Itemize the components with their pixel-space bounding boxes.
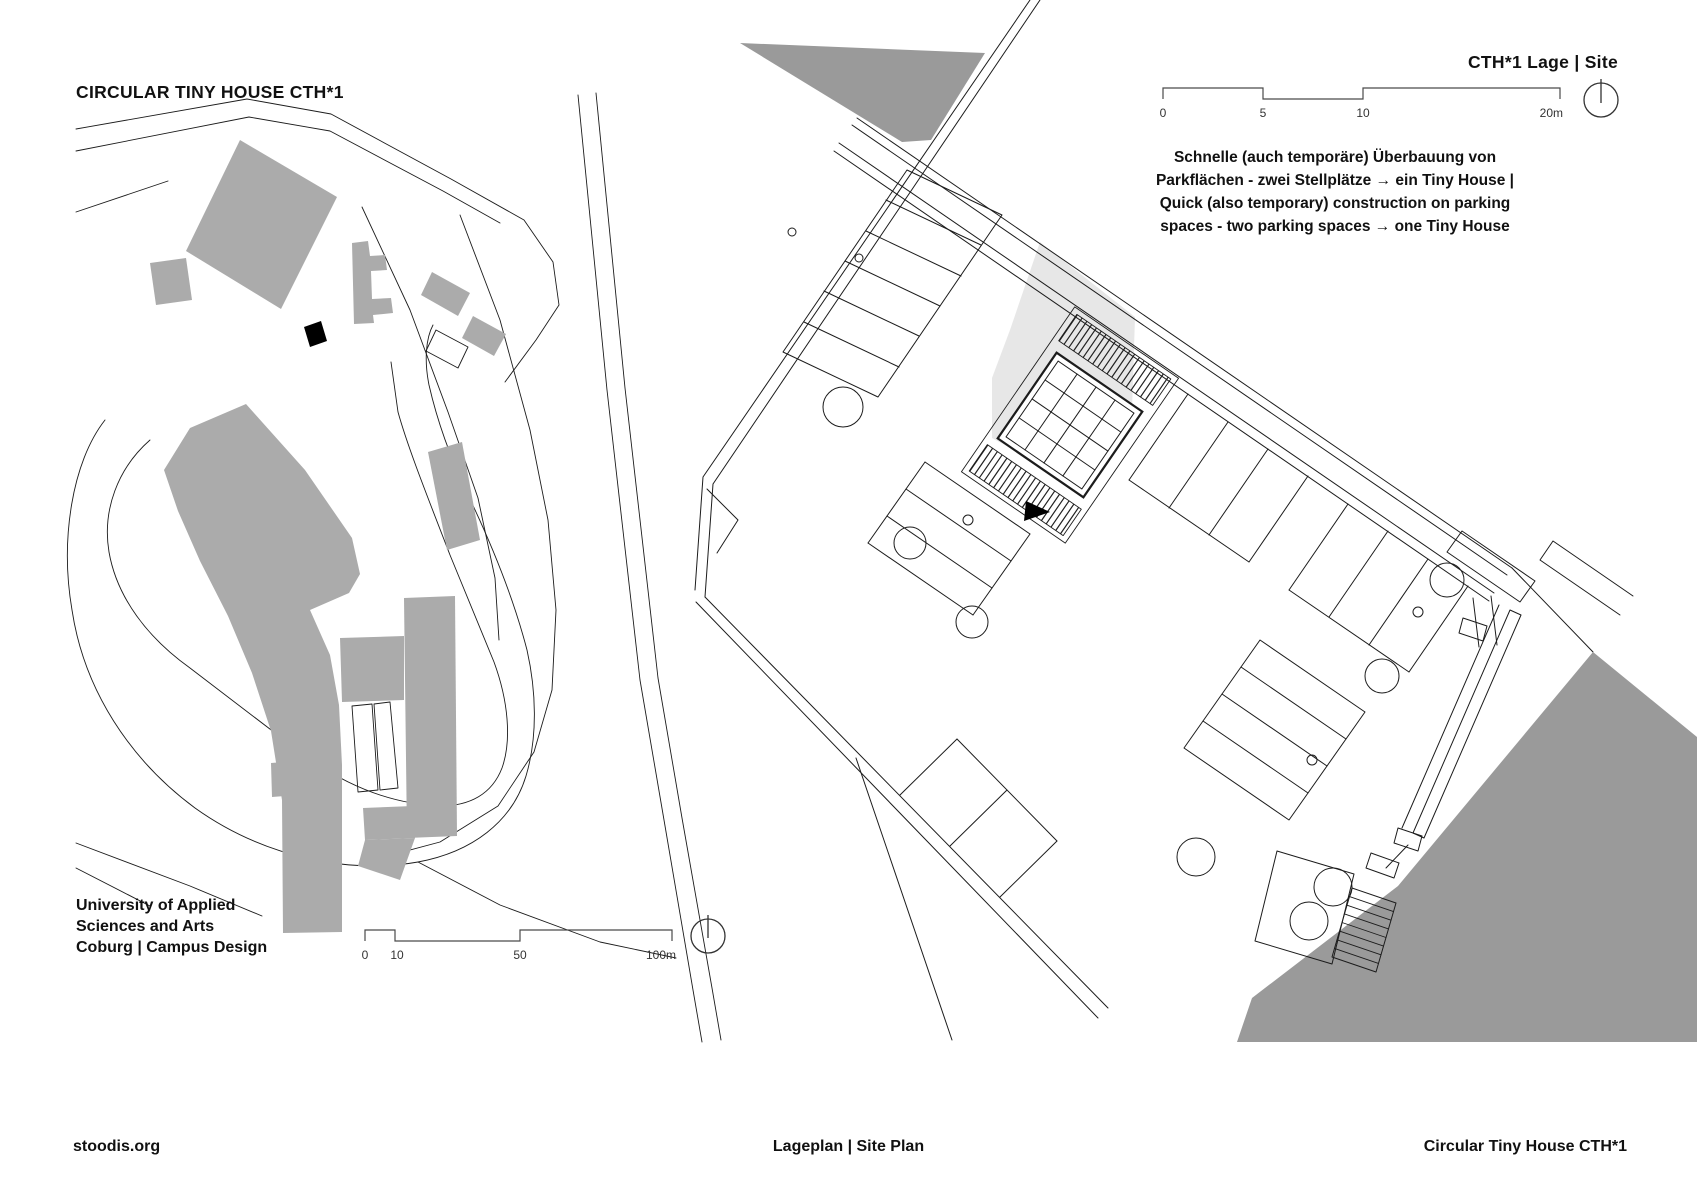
site-scale-bar: 0 5 10 20m (1160, 88, 1563, 120)
building-outline (1386, 845, 1408, 868)
neighbor-building (740, 43, 985, 142)
building (421, 272, 470, 316)
scale-tick-label: 10 (1356, 106, 1370, 120)
building (340, 636, 404, 702)
scale-tick-label: 50 (513, 948, 527, 962)
parking-block-upper-left (783, 170, 1002, 427)
campus-scale-bar: 0 10 50 100m (362, 930, 676, 962)
building-outline (1540, 541, 1633, 615)
parking-stall-line (866, 231, 961, 276)
building (150, 258, 192, 305)
parking-stall-line (1209, 449, 1268, 535)
tree-circle (956, 606, 988, 638)
road-line (418, 862, 676, 958)
post-circle (963, 515, 973, 525)
scale-tick-label: 100m (646, 948, 676, 962)
post-circle (1413, 607, 1423, 617)
scale-tick-label: 0 (362, 948, 369, 962)
caption-line: University of Applied (76, 895, 267, 916)
road-line (362, 207, 499, 640)
parking-aisle-edge (973, 534, 1030, 615)
caption-line: Coburg | Campus Design (76, 937, 267, 958)
parking-stall-line (1329, 531, 1388, 617)
annotation-line: Quick (also temporary) construction on p… (1095, 192, 1575, 215)
sheet: 0 10 50 100m 0 5 10 20m CIRCULAR TINY HO… (0, 0, 1697, 1200)
parking-stall-line (1249, 476, 1308, 562)
building-outline (352, 704, 378, 792)
road-line (705, 597, 1108, 1008)
building (363, 806, 415, 840)
parking-stall-line (824, 291, 919, 336)
parking-block-lower-right (1177, 640, 1365, 876)
parking-block-bottom (900, 739, 1057, 897)
parking-aisle-edge (957, 739, 1057, 841)
tree-circle (1177, 838, 1215, 876)
cth-location-marker (304, 321, 327, 347)
caption-line: Sciences and Arts (76, 916, 267, 937)
building (428, 442, 480, 550)
parking-stall-line (900, 739, 957, 795)
building (352, 241, 393, 324)
post-circle (1307, 755, 1317, 765)
building-outline (1394, 828, 1422, 851)
parking-stall-line (1203, 721, 1308, 793)
annotation-line: Parkflächen - zwei Stellplätze → ein Tin… (1095, 169, 1575, 192)
campus-north-arrow-icon (691, 915, 725, 953)
parking-stall-line (868, 543, 973, 615)
campus-caption: University of Applied Sciences and Arts … (76, 895, 267, 958)
road-line (1512, 568, 1593, 652)
large-gray-building (1237, 652, 1697, 1042)
building (358, 838, 415, 880)
site-annotation: Schnelle (auch temporäre) Überbauung von… (1095, 146, 1575, 238)
parking-stall-line (886, 200, 981, 245)
parking-stall-line (1369, 559, 1428, 645)
parking-aisle-edge (1129, 480, 1249, 562)
parking-stall-line (1169, 422, 1228, 508)
road-line (76, 181, 168, 212)
scale-bar-line (1163, 88, 1560, 99)
parking-aisle-edge (1289, 590, 1409, 672)
parking-stall-line (906, 489, 1011, 561)
tree-circle (1314, 868, 1352, 906)
site-panel-title: CTH*1 Lage | Site (1468, 52, 1618, 73)
parking-stall-line (950, 790, 1007, 846)
street-line (578, 95, 702, 1042)
site-north-arrow-icon (1584, 79, 1618, 117)
scale-tick-label: 5 (1260, 106, 1267, 120)
parking-stall-line (845, 261, 940, 306)
scale-tick-label: 10 (390, 948, 404, 962)
parking-stall-line (887, 516, 992, 588)
building-outline (426, 330, 468, 368)
building-outline (374, 702, 398, 790)
scale-tick-label: 20m (1540, 106, 1563, 120)
tree-circle (823, 387, 863, 427)
parking-stall-line (1000, 841, 1057, 897)
campus-panel-title: CIRCULAR TINY HOUSE CTH*1 (76, 82, 344, 103)
scale-bar-line (365, 930, 672, 941)
scale-tick-label: 0 (1160, 106, 1167, 120)
post-circle (855, 254, 863, 262)
tree-circle (1365, 659, 1399, 693)
building (462, 316, 506, 356)
building (186, 140, 337, 309)
main-campus-building (164, 404, 360, 933)
building (271, 762, 285, 797)
building (404, 596, 457, 838)
annotation-line: Schnelle (auch temporäre) Überbauung von (1095, 146, 1575, 169)
post-circle (788, 228, 796, 236)
building-outline (1459, 618, 1487, 641)
building (261, 611, 270, 641)
parking-stall-line (1241, 667, 1346, 739)
annotation-line: spaces - two parking spaces → one Tiny H… (1095, 215, 1575, 238)
parking-aisle-edge (868, 462, 925, 543)
parking-stall-line (1289, 504, 1348, 590)
road-line (696, 602, 1098, 1018)
footer-project-title: Circular Tiny House CTH*1 (1424, 1138, 1627, 1156)
tree-circle (1290, 902, 1328, 940)
parking-block-right (1289, 504, 1468, 693)
parking-stall-line (1409, 586, 1468, 672)
building-outline (1366, 853, 1399, 878)
street-line (596, 93, 721, 1040)
parking-stall-line (804, 322, 899, 367)
